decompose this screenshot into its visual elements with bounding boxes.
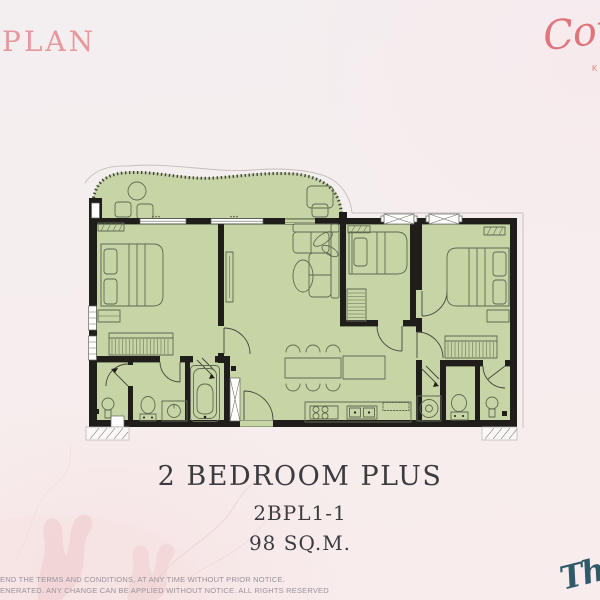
balcony-niche [92, 203, 100, 218]
plan-title-partial: PLAN [2, 25, 96, 58]
unit-info-block: 2 BEDROOM PLUS 2BPL1-1 98 SQ.M. [0, 461, 600, 555]
brand-script-text: Cor [540, 6, 600, 60]
brand-subtext: K [592, 64, 598, 73]
bottom-wall-notch [111, 416, 124, 427]
unit-area: 98 SQ.M. [0, 531, 600, 555]
disclaimer-line-2: ENERATED. ANY CHANGE CAN BE APPLIED WITH… [0, 585, 329, 596]
ac-ledges [86, 427, 517, 440]
unit-floor [93, 171, 517, 422]
floor-plan-page: PLAN Cor K [0, 0, 600, 600]
brand-logo: Cor K [543, 10, 600, 56]
disclaimer-line-1: END THE TERMS AND CONDITIONS, AT ANY TIM… [0, 574, 329, 585]
floorplan-drawing [85, 160, 525, 450]
signature-script: Th [556, 550, 600, 597]
disclaimer-block: END THE TERMS AND CONDITIONS, AT ANY TIM… [0, 574, 329, 596]
unit-type-title: 2 BEDROOM PLUS [0, 461, 600, 492]
unit-code: 2BPL1-1 [0, 501, 600, 525]
